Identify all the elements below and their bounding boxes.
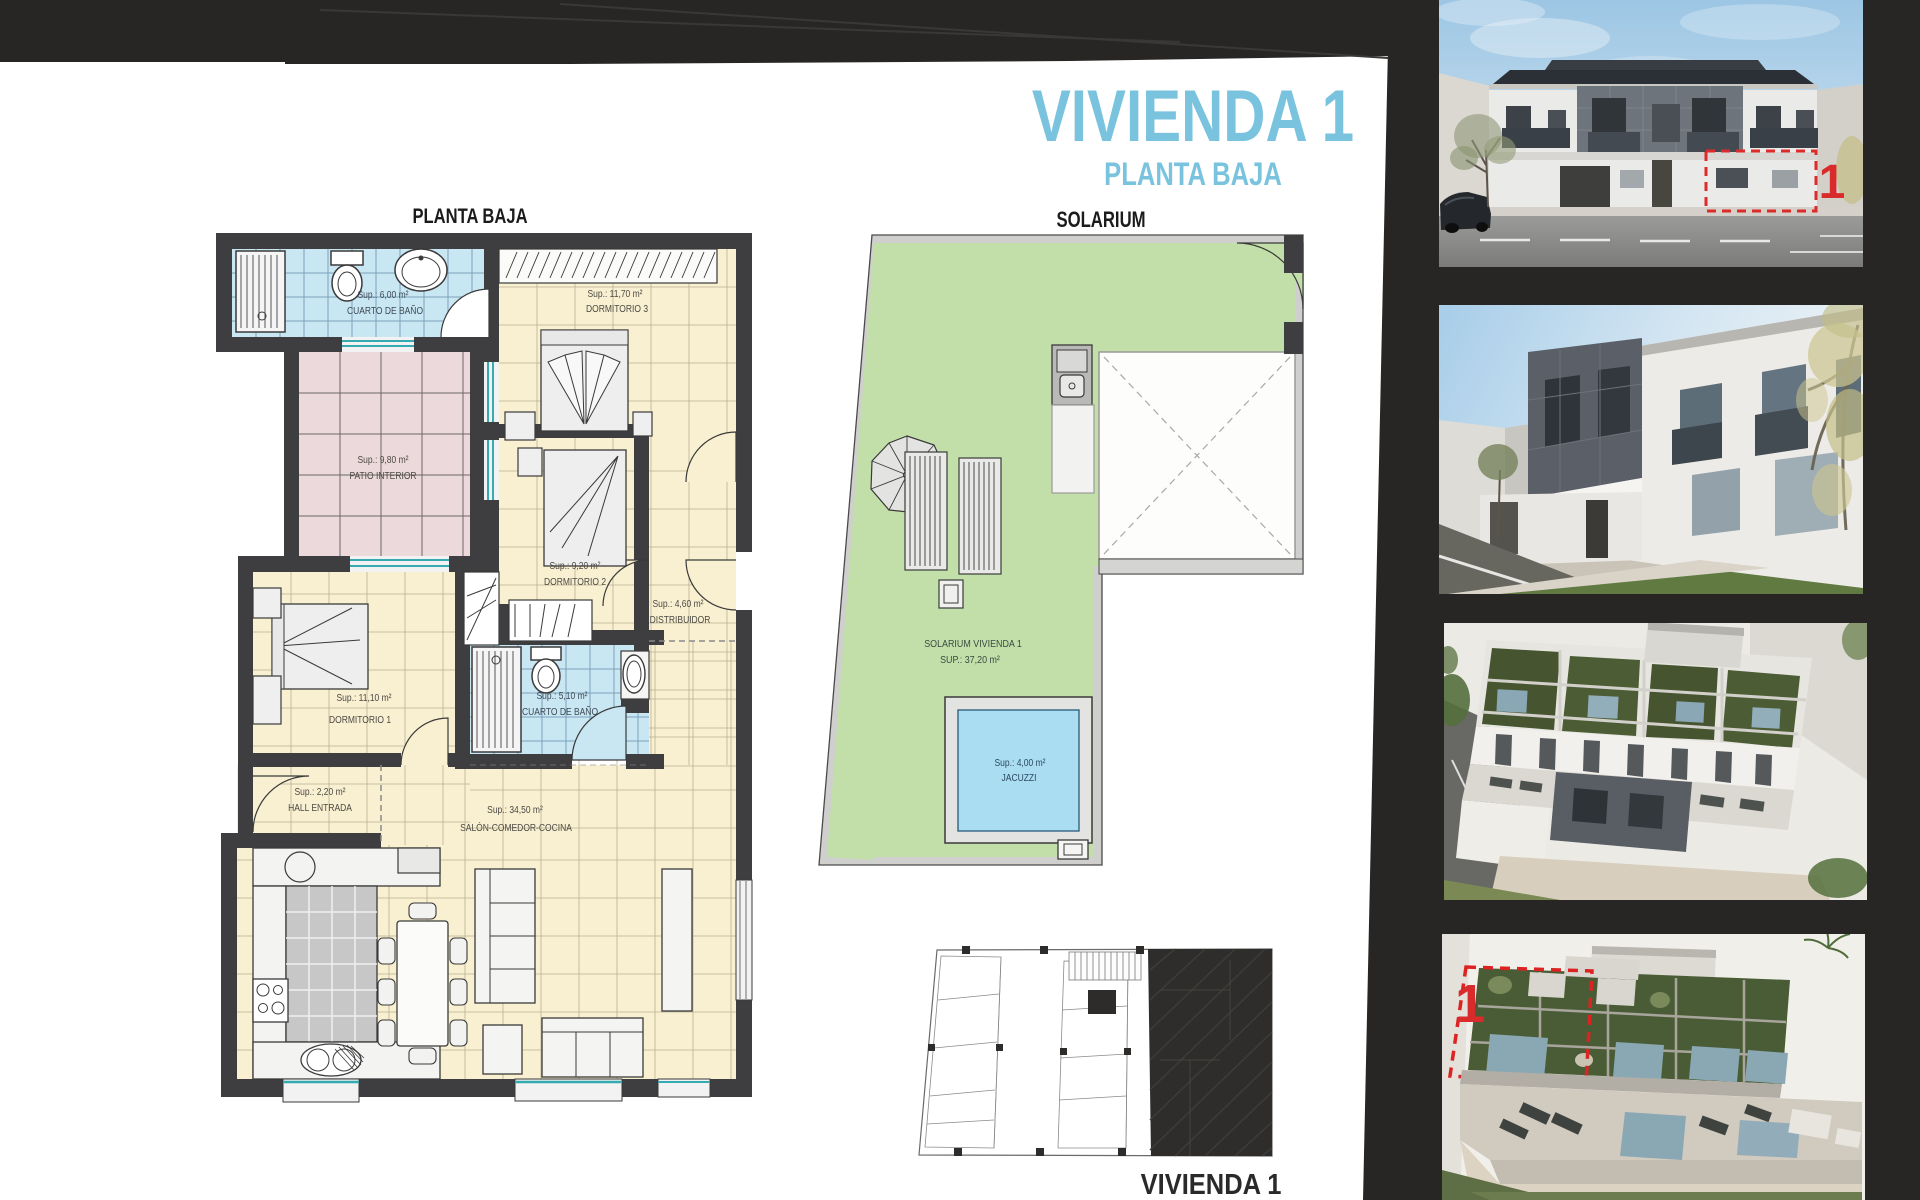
svg-text:VIVIENDA 1: VIVIENDA 1 [1141, 1167, 1282, 1200]
svg-text:PLANTA BAJA: PLANTA BAJA [1104, 157, 1282, 192]
svg-text:PLANTA BAJA: PLANTA BAJA [412, 205, 527, 228]
svg-text:Sup.: 6,00 m²: Sup.: 6,00 m² [358, 289, 409, 300]
svg-text:SOLARIUM VIVIENDA 1: SOLARIUM VIVIENDA 1 [924, 638, 1022, 650]
svg-text:DISTRIBUIDOR: DISTRIBUIDOR [650, 614, 711, 625]
svg-text:Sup.: 11,10 m²: Sup.: 11,10 m² [336, 692, 391, 703]
svg-text:CUARTO DE BAÑO: CUARTO DE BAÑO [347, 305, 423, 316]
svg-text:SOLARIUM: SOLARIUM [1056, 208, 1145, 233]
svg-text:1: 1 [1819, 156, 1846, 209]
svg-text:Sup.: 9,20 m²: Sup.: 9,20 m² [550, 560, 601, 571]
svg-text:Sup.: 9,80 m²: Sup.: 9,80 m² [358, 454, 409, 465]
svg-text:VIVIENDA 1: VIVIENDA 1 [1032, 76, 1354, 158]
svg-text:1: 1 [1455, 974, 1485, 1034]
svg-text:DORMITORIO 2: DORMITORIO 2 [544, 576, 606, 587]
svg-text:Sup.: 4,60 m²: Sup.: 4,60 m² [653, 598, 704, 609]
svg-text:DORMITORIO 1: DORMITORIO 1 [329, 714, 391, 725]
svg-text:Sup.: 11,70 m²: Sup.: 11,70 m² [587, 288, 642, 299]
svg-text:SUP.: 37,20 m²: SUP.: 37,20 m² [940, 654, 1000, 666]
svg-text:PATIO INTERIOR: PATIO INTERIOR [349, 470, 416, 481]
svg-text:Sup.: 4,00 m²: Sup.: 4,00 m² [995, 757, 1046, 768]
svg-text:HALL ENTRADA: HALL ENTRADA [288, 802, 353, 813]
svg-text:Sup.: 2,20 m²: Sup.: 2,20 m² [295, 786, 346, 797]
svg-text:DORMITORIO 3: DORMITORIO 3 [586, 303, 648, 314]
svg-text:Sup.: 5,10 m²: Sup.: 5,10 m² [537, 690, 588, 701]
svg-text:SALÓN-COMEDOR-COCINA: SALÓN-COMEDOR-COCINA [460, 822, 572, 833]
svg-text:JACUZZI: JACUZZI [1002, 772, 1037, 783]
svg-text:CUARTO DE BAÑO: CUARTO DE BAÑO [522, 706, 598, 717]
svg-text:Sup.: 34,50 m²: Sup.: 34,50 m² [487, 804, 543, 815]
